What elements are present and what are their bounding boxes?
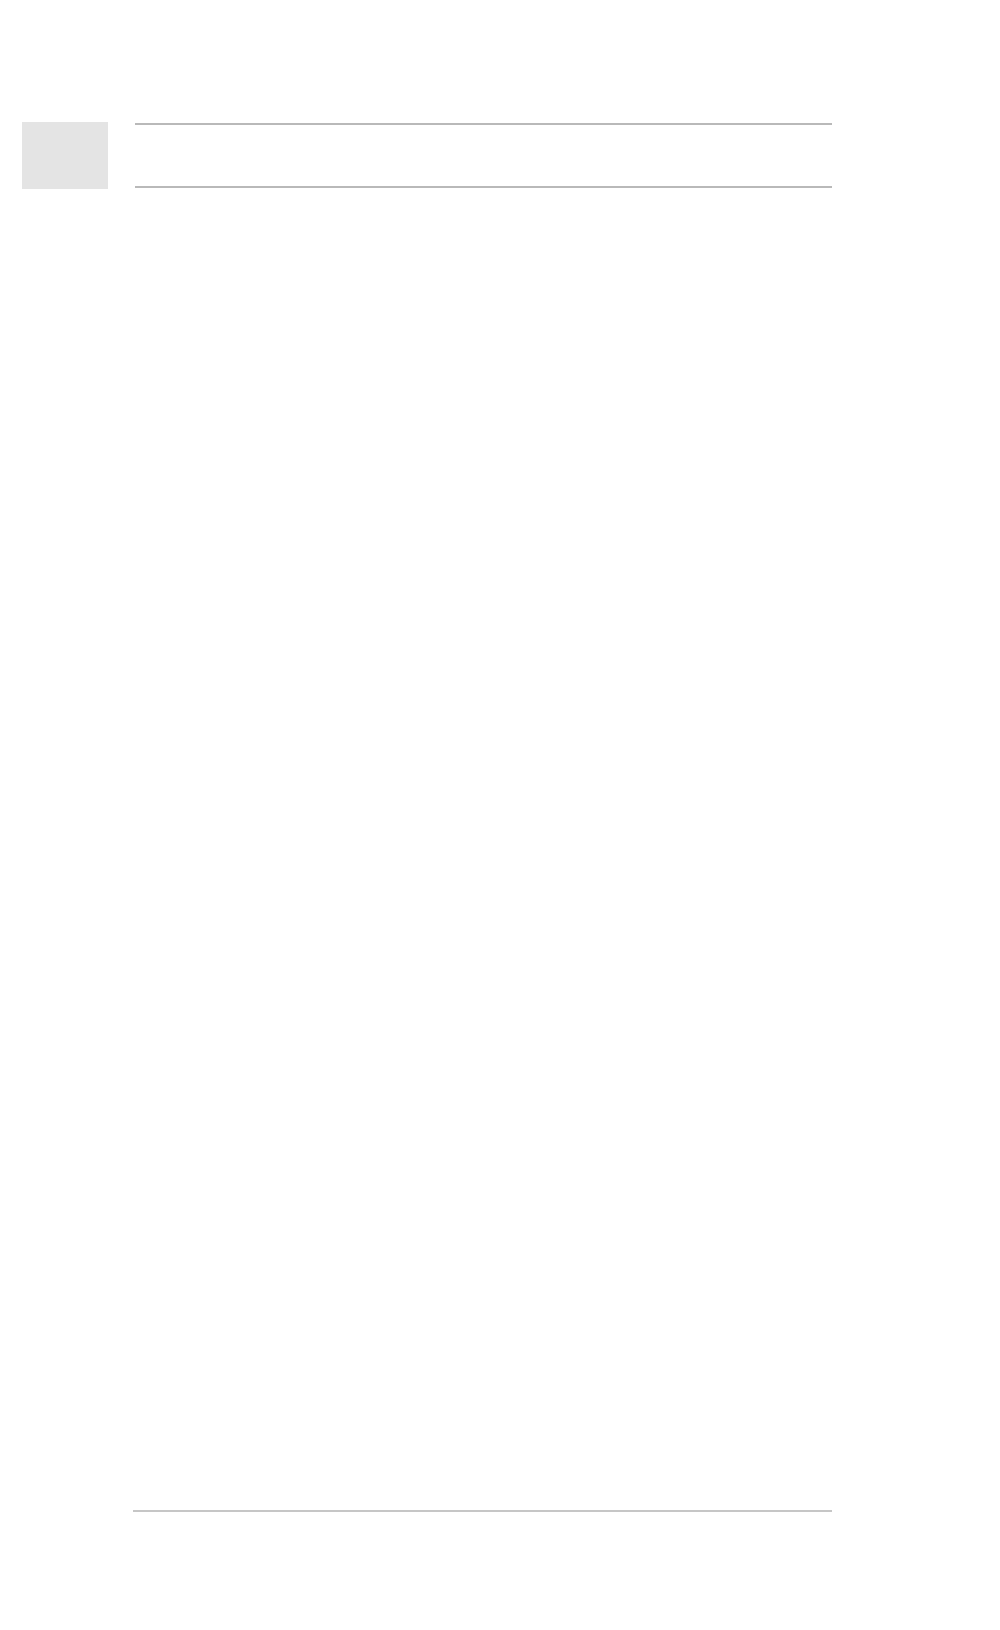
site-plan-figure — [135, 547, 571, 1462]
caption-rule — [133, 1510, 832, 1512]
document-page — [0, 0, 1000, 1630]
page-margin-block — [22, 122, 108, 189]
title-rule-bottom — [135, 186, 832, 188]
site-plan-image — [135, 547, 571, 1462]
title-rule-top — [135, 123, 832, 125]
